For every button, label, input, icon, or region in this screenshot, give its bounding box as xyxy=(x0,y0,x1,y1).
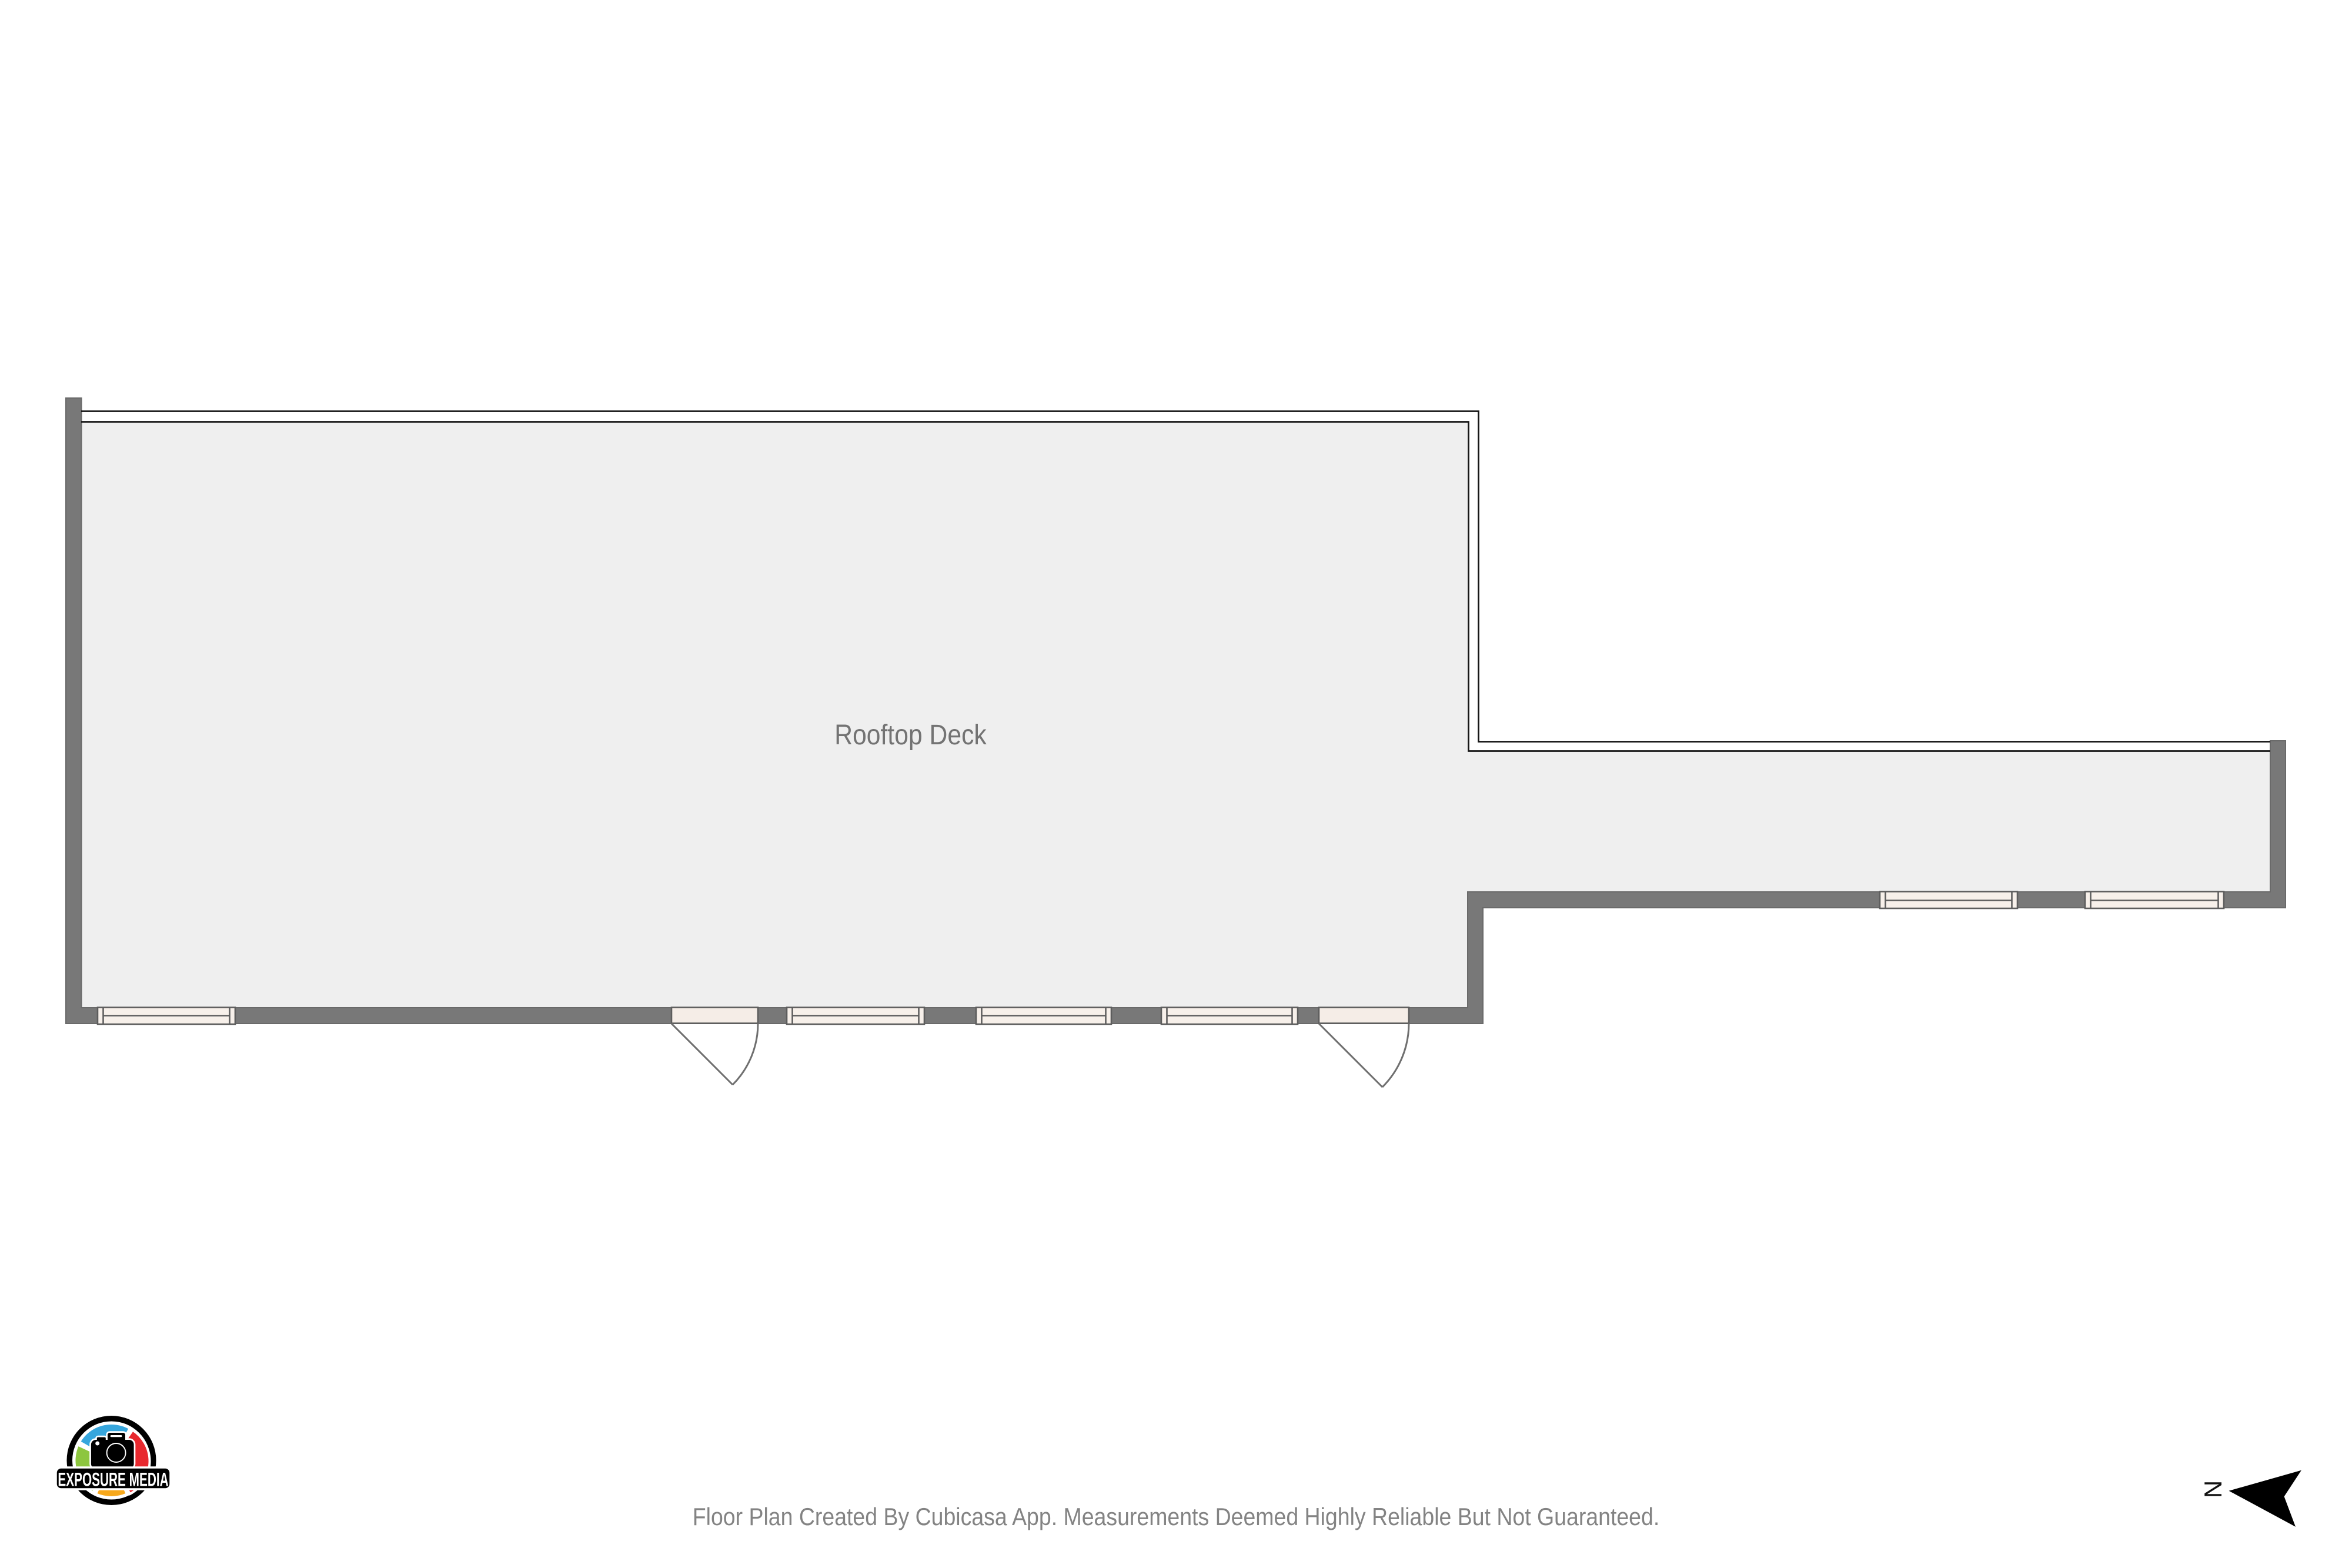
svg-text:EXPOSURE MEDIA: EXPOSURE MEDIA xyxy=(58,1469,168,1490)
svg-text:Floor Plan Created By Cubicasa: Floor Plan Created By Cubicasa App. Meas… xyxy=(693,1503,1659,1530)
svg-text:N: N xyxy=(2199,1480,2227,1498)
svg-text:Rooftop Deck: Rooftop Deck xyxy=(834,719,987,751)
